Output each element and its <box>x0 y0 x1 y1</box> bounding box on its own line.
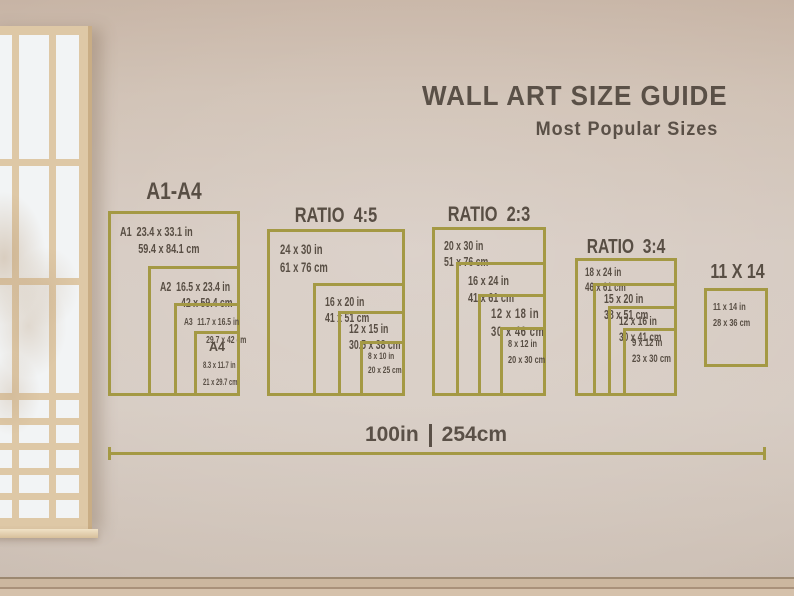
size-cm: 61 x 76 cm <box>280 259 365 277</box>
size-cm: 20 x 25 cm <box>368 364 392 378</box>
size-rect-9x12: 9 x 12 in 23 x 30 cm <box>623 328 677 396</box>
window-pane <box>56 285 79 393</box>
wall-art-size-guide-poster: WALL ART SIZE GUIDE Most Popular Sizes A… <box>0 0 794 596</box>
size-inches: 20 x 30 in <box>444 238 513 254</box>
window-pane <box>19 166 49 278</box>
size-cm: 23 x 30 cm <box>632 352 661 368</box>
size-inches: 16.5 x 23.4 in <box>176 280 230 294</box>
size-cm: 59.4 x 84.1 cm <box>120 241 202 258</box>
size-label-a1: A123.4 x 33.1 in 59.4 x 84.1 cm <box>120 224 202 258</box>
scale-separator-bar <box>429 424 432 447</box>
group-header-ratio-3-4: RATIO 3:4 <box>577 236 675 259</box>
window-pane <box>56 166 79 278</box>
window-pane <box>0 450 12 468</box>
size-rect-8x12: 8 x 12 in 20 x 30 cm <box>500 327 546 396</box>
size-rect-11x14: 11 x 14 in 28 x 36 cm <box>704 288 768 367</box>
window-pane <box>19 475 49 493</box>
window-pane <box>19 35 49 159</box>
size-inches: 23.4 x 33.1 in <box>137 224 193 239</box>
size-name: A2 <box>160 280 171 294</box>
size-inches: 8 x 12 in <box>508 337 533 353</box>
size-label-24x30: 24 x 30 in 61 x 76 cm <box>280 241 365 276</box>
window-pane <box>56 35 79 159</box>
poster-title: WALL ART SIZE GUIDE <box>422 80 728 112</box>
size-inches: 24 x 30 in <box>280 241 365 259</box>
window-pane <box>56 500 79 518</box>
scale-inches: 100in <box>365 423 419 447</box>
size-label-a4: A4 8.3 x 11.7 in 21 x 29.7 cm <box>197 339 237 389</box>
window-pane <box>56 475 79 493</box>
window-pane <box>0 425 12 443</box>
window-pane <box>0 285 12 393</box>
size-inches: 8.3 x 11.7 in <box>203 360 225 372</box>
size-inches: 12 x 15 in <box>349 321 386 337</box>
group-header-11x14: 11 X 14 <box>701 261 774 284</box>
size-label-9x12: 9 x 12 in 23 x 30 cm <box>632 336 661 368</box>
window-pane <box>0 500 12 518</box>
size-label-8x12: 8 x 12 in 20 x 30 cm <box>508 337 533 369</box>
window-pane <box>56 400 79 418</box>
scale-label: 100in 254cm <box>286 423 586 447</box>
window-pane <box>19 425 49 443</box>
group-header-ratio-4-5: RATIO 4:5 <box>273 204 399 228</box>
size-label-11x14: 11 x 14 in 28 x 36 cm <box>713 300 749 332</box>
group-header-a-series: A1-A4 <box>113 178 235 206</box>
window-pane <box>0 166 12 278</box>
size-name: A4 <box>197 339 237 355</box>
size-inches: 11.7 x 16.5 in <box>197 316 239 328</box>
size-inches: 8 x 10 in <box>368 350 392 364</box>
size-cm: 28 x 36 cm <box>713 316 749 332</box>
size-inches: 12 x 18 in <box>491 305 527 323</box>
window-pane <box>19 400 49 418</box>
poster-subtitle: Most Popular Sizes <box>535 119 718 141</box>
window-pane <box>19 500 49 518</box>
size-label-8x10: 8 x 10 in 20 x 25 cm <box>368 350 392 378</box>
size-inches: 15 x 20 in <box>604 291 653 307</box>
size-rect-a4: A4 8.3 x 11.7 in 21 x 29.7 cm <box>194 331 240 396</box>
baseboard <box>0 577 794 596</box>
size-inches: 9 x 12 in <box>632 336 661 352</box>
size-name: A1 <box>120 224 132 239</box>
window-pane <box>0 400 12 418</box>
size-rect-8x10: 8 x 10 in 20 x 25 cm <box>360 341 405 396</box>
window-pane <box>0 475 12 493</box>
window-pane <box>0 35 12 159</box>
size-inches: 18 x 24 in <box>585 266 647 281</box>
shoji-window <box>0 26 92 529</box>
window-pane <box>56 450 79 468</box>
size-cm: 20 x 30 cm <box>508 353 533 369</box>
window-sill <box>0 529 98 538</box>
window-pane <box>19 285 49 393</box>
size-cm: 21 x 29.7 cm <box>203 377 225 389</box>
window-lattice <box>0 35 79 520</box>
size-inches: 11 x 14 in <box>713 300 749 316</box>
group-header-ratio-2-3: RATIO 2:3 <box>435 203 543 227</box>
scale-cm: 254cm <box>442 423 507 447</box>
size-inches: 16 x 24 in <box>468 273 521 290</box>
window-pane <box>19 450 49 468</box>
window-pane <box>56 425 79 443</box>
scale-line <box>108 452 766 455</box>
size-inches: 16 x 20 in <box>325 294 379 310</box>
size-name: A3 <box>184 316 193 328</box>
